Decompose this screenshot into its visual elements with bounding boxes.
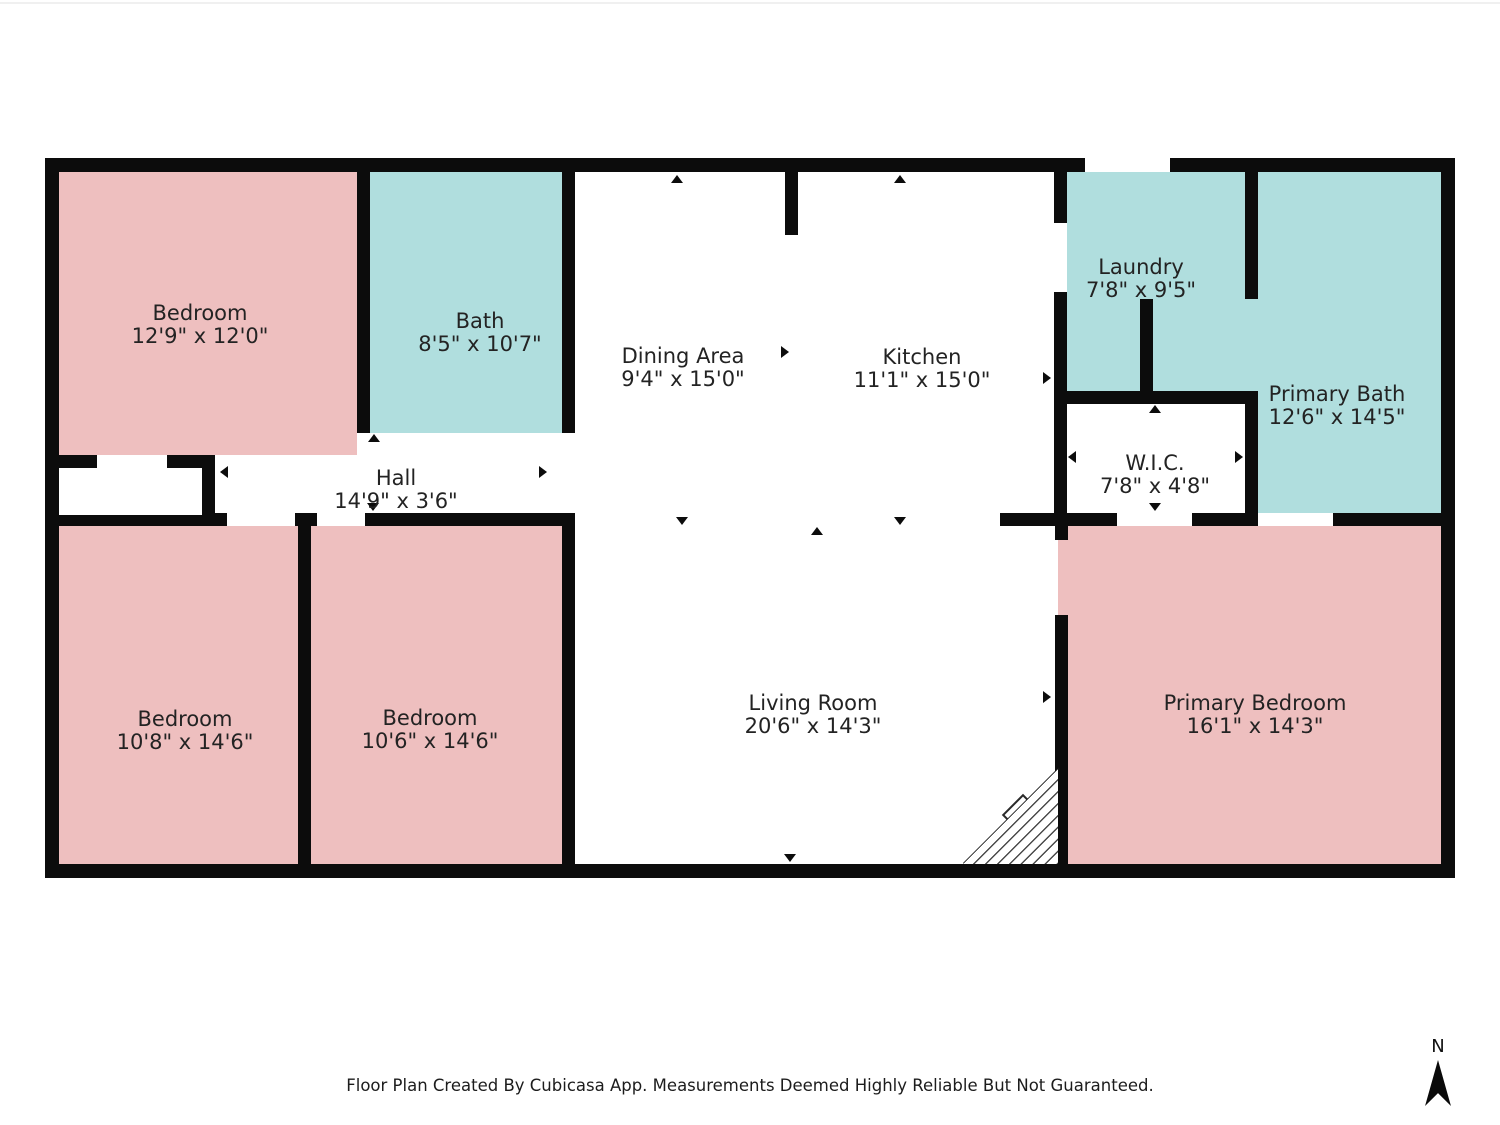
direction-tick-icon bbox=[1043, 691, 1051, 703]
wall-segment bbox=[1170, 158, 1455, 172]
direction-tick-icon bbox=[1068, 451, 1076, 463]
room-dims: 12'6" x 14'5" bbox=[1269, 406, 1406, 429]
wall-segment bbox=[45, 158, 59, 878]
room-label-living-room: Living Room 20'6" x 14'3" bbox=[745, 692, 882, 738]
room-label-bedroom-top-left: Bedroom 12'9" x 12'0" bbox=[132, 302, 269, 348]
wall-segment bbox=[45, 158, 1085, 172]
room-dims: 7'8" x 4'8" bbox=[1100, 475, 1210, 498]
room-dims: 12'9" x 12'0" bbox=[132, 325, 269, 348]
room-dims: 7'8" x 9'5" bbox=[1086, 279, 1196, 302]
direction-tick-icon bbox=[894, 175, 906, 183]
room-name: Laundry bbox=[1086, 256, 1196, 279]
room-dims: 8'5" x 10'7" bbox=[418, 333, 541, 356]
top-edge-line bbox=[0, 2, 1500, 4]
direction-tick-icon bbox=[671, 175, 683, 183]
floor-plan-canvas: Bedroom 12'9" x 12'0" Bath 8'5" x 10'7" … bbox=[0, 0, 1500, 1125]
direction-tick-icon bbox=[784, 854, 796, 862]
direction-tick-icon bbox=[1235, 451, 1243, 463]
wall-segment bbox=[1054, 391, 1258, 404]
wall-segment bbox=[365, 513, 575, 526]
room-label-dining-area: Dining Area 9'4" x 15'0" bbox=[621, 345, 744, 391]
wall-segment bbox=[1054, 292, 1067, 513]
room-dims: 9'4" x 15'0" bbox=[621, 368, 744, 391]
room-fill-bedroom-bottom-left bbox=[59, 526, 298, 864]
room-label-kitchen: Kitchen 11'1" x 15'0" bbox=[854, 346, 991, 392]
room-label-bath: Bath 8'5" x 10'7" bbox=[418, 310, 541, 356]
room-dims: 10'8" x 14'6" bbox=[117, 731, 254, 754]
room-name: Living Room bbox=[745, 692, 882, 715]
wall-segment bbox=[562, 158, 575, 433]
page: { "plan": { "colors": { "room_pink": "#E… bbox=[0, 0, 1500, 1125]
room-name: Bedroom bbox=[362, 707, 499, 730]
wall-segment bbox=[357, 158, 370, 433]
room-name: Hall bbox=[334, 467, 457, 490]
direction-tick-icon bbox=[811, 527, 823, 535]
room-label-primary-bath: Primary Bath 12'6" x 14'5" bbox=[1269, 383, 1406, 429]
direction-tick-icon bbox=[1149, 405, 1161, 413]
room-name: Dining Area bbox=[621, 345, 744, 368]
direction-tick-icon bbox=[1149, 503, 1161, 511]
room-label-primary-bedroom: Primary Bedroom 16'1" x 14'3" bbox=[1164, 692, 1347, 738]
direction-tick-icon bbox=[368, 434, 380, 442]
room-dims: 20'6" x 14'3" bbox=[745, 715, 882, 738]
wall-segment bbox=[1245, 404, 1258, 526]
room-fill-primary-bedroom-door bbox=[1058, 540, 1068, 615]
room-name: Bedroom bbox=[117, 708, 254, 731]
room-fill-bedroom-bottom-mid bbox=[311, 526, 562, 864]
compass: N bbox=[1410, 1038, 1466, 1106]
room-label-bedroom-bottom-left: Bedroom 10'8" x 14'6" bbox=[117, 708, 254, 754]
room-name: Bath bbox=[418, 310, 541, 333]
direction-tick-icon bbox=[220, 466, 228, 478]
room-dims: 11'1" x 15'0" bbox=[854, 369, 991, 392]
room-name: Kitchen bbox=[854, 346, 991, 369]
direction-tick-icon bbox=[539, 466, 547, 478]
direction-tick-icon bbox=[1043, 372, 1051, 384]
wall-segment bbox=[45, 864, 1455, 878]
room-name: Primary Bath bbox=[1269, 383, 1406, 406]
room-label-wic: W.I.C. 7'8" x 4'8" bbox=[1100, 452, 1210, 498]
wall-segment bbox=[1441, 158, 1455, 878]
wall-segment bbox=[562, 513, 575, 864]
room-label-hall: Hall 14'9" x 3'6" bbox=[334, 467, 457, 513]
wall-segment bbox=[298, 525, 311, 864]
footer-disclaimer: Floor Plan Created By Cubicasa App. Meas… bbox=[0, 1076, 1500, 1095]
wall-segment bbox=[1192, 513, 1257, 526]
room-label-laundry: Laundry 7'8" x 9'5" bbox=[1086, 256, 1196, 302]
compass-n-label: N bbox=[1410, 1038, 1466, 1056]
wall-segment bbox=[1000, 513, 1068, 526]
direction-tick-icon bbox=[894, 517, 906, 525]
room-dims: 14'9" x 3'6" bbox=[334, 490, 457, 513]
fireplace-hatch bbox=[963, 769, 1058, 864]
wall-segment bbox=[1245, 158, 1258, 299]
room-name: Primary Bedroom bbox=[1164, 692, 1347, 715]
wall-segment bbox=[167, 455, 213, 468]
room-name: W.I.C. bbox=[1100, 452, 1210, 475]
north-arrow-icon bbox=[1420, 1060, 1456, 1106]
direction-tick-icon bbox=[781, 346, 789, 358]
room-dims: 16'1" x 14'3" bbox=[1164, 715, 1347, 738]
room-dims: 10'6" x 14'6" bbox=[362, 730, 499, 753]
room-fill-primary-bath-a bbox=[1258, 172, 1441, 513]
room-label-bedroom-bottom-mid: Bedroom 10'6" x 14'6" bbox=[362, 707, 499, 753]
direction-tick-icon bbox=[676, 517, 688, 525]
wall-segment bbox=[295, 513, 317, 526]
room-fill-primary-bath-b bbox=[1153, 299, 1258, 391]
wall-segment bbox=[1333, 513, 1441, 526]
room-name: Bedroom bbox=[132, 302, 269, 325]
room-fill-bath bbox=[370, 172, 562, 433]
wall-segment bbox=[1068, 513, 1117, 526]
